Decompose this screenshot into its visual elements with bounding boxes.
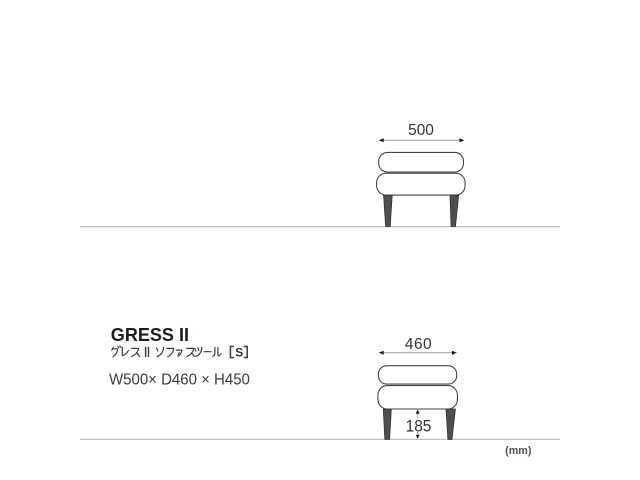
svg-text:GRESS II: GRESS II bbox=[111, 324, 189, 345]
svg-text:W500× D460 × H450: W500× D460 × H450 bbox=[109, 371, 250, 388]
svg-text:S: S bbox=[235, 345, 243, 359]
svg-text:460: 460 bbox=[405, 336, 432, 353]
svg-text:500: 500 bbox=[408, 122, 434, 139]
svg-text:(mm): (mm) bbox=[505, 445, 532, 457]
svg-text:185: 185 bbox=[406, 417, 432, 436]
